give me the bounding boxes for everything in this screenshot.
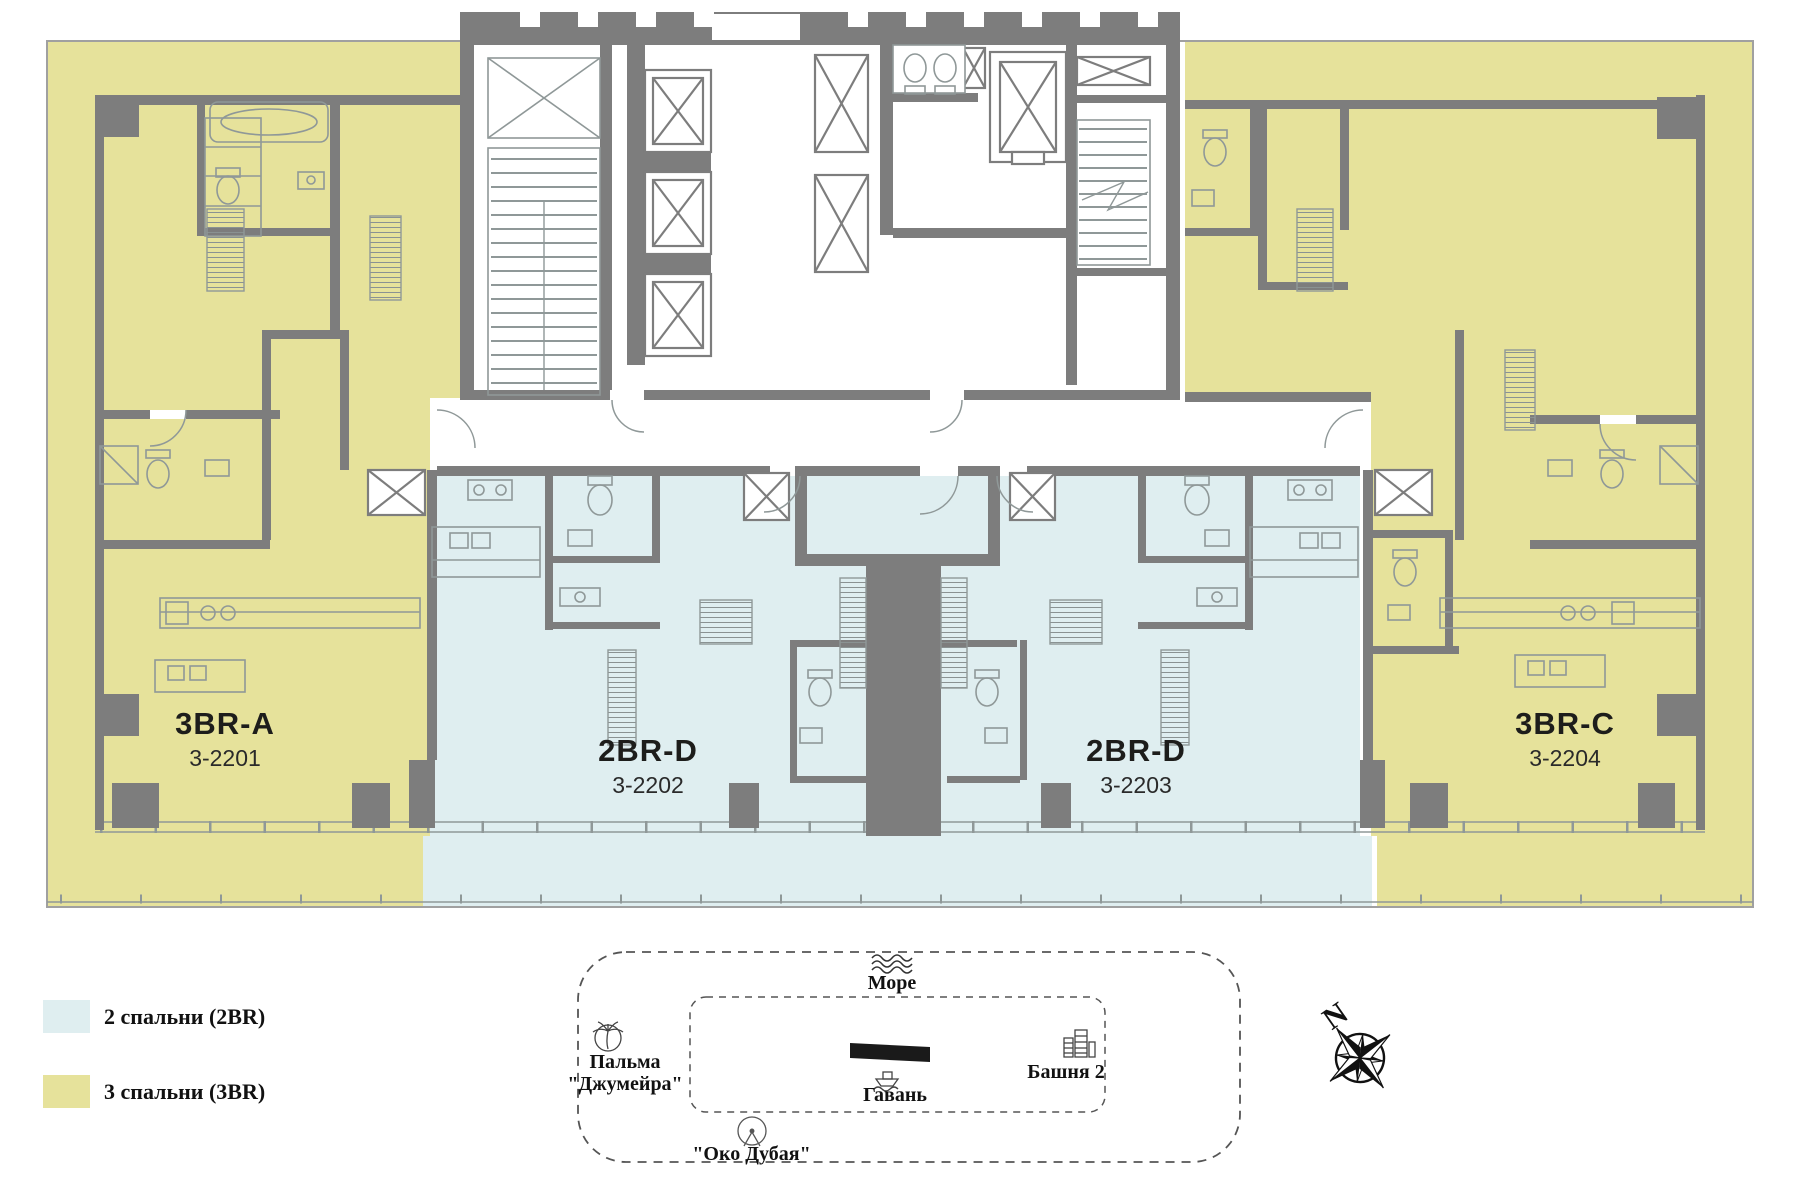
ferris-wheel-icon bbox=[738, 1117, 766, 1146]
legend-item-3br: 3 спальни (3BR) bbox=[43, 1075, 265, 1108]
sea-label: Море bbox=[832, 972, 952, 994]
palm-label-line2: "Джумейра" bbox=[545, 1073, 705, 1095]
legend-swatch-2br bbox=[43, 1000, 90, 1033]
legend-item-2br: 2 спальни (2BR) bbox=[43, 1000, 265, 1033]
legend-swatch-3br bbox=[43, 1075, 90, 1108]
unit-type: 2BR-D bbox=[1026, 733, 1246, 769]
palm-label-line1: Пальма bbox=[545, 1051, 705, 1073]
floor-plan-drawing bbox=[0, 0, 1800, 1200]
unit-number: 3-2204 bbox=[1455, 745, 1675, 772]
palm-icon bbox=[593, 1022, 623, 1051]
unit-label-2br-d-2202: 2BR-D 3-2202 bbox=[538, 733, 758, 799]
harbor-label: Гавань bbox=[835, 1084, 955, 1106]
tower-3-footprint bbox=[850, 1043, 930, 1062]
palm-label: Пальма "Джумейра" bbox=[545, 1051, 705, 1095]
tower-2-buildings-icon bbox=[1064, 1030, 1095, 1057]
unit-label-3br-c: 3BR-C 3-2204 bbox=[1455, 706, 1675, 772]
floor-plan-page: 3BR-A 3-2201 2BR-D 3-2202 2BR-D 3-2203 3… bbox=[0, 0, 1800, 1200]
compass-rose bbox=[1307, 1005, 1414, 1112]
unit-number: 3-2201 bbox=[115, 745, 335, 772]
unit-number: 3-2202 bbox=[538, 772, 758, 799]
unit-number: 3-2203 bbox=[1026, 772, 1246, 799]
unit-type: 3BR-A bbox=[115, 706, 335, 742]
tower-2-label: Башня 2 bbox=[1006, 1061, 1126, 1083]
legend-label-3br: 3 спальни (3BR) bbox=[104, 1079, 265, 1105]
legend-label-2br: 2 спальни (2BR) bbox=[104, 1004, 265, 1030]
dubai-eye-label: "Око Дубая" bbox=[689, 1143, 814, 1165]
unit-label-3br-a: 3BR-A 3-2201 bbox=[115, 706, 335, 772]
unit-type: 3BR-C bbox=[1455, 706, 1675, 742]
unit-type: 2BR-D bbox=[538, 733, 758, 769]
unit-label-2br-d-2203: 2BR-D 3-2203 bbox=[1026, 733, 1246, 799]
sea-waves-icon bbox=[872, 955, 912, 973]
